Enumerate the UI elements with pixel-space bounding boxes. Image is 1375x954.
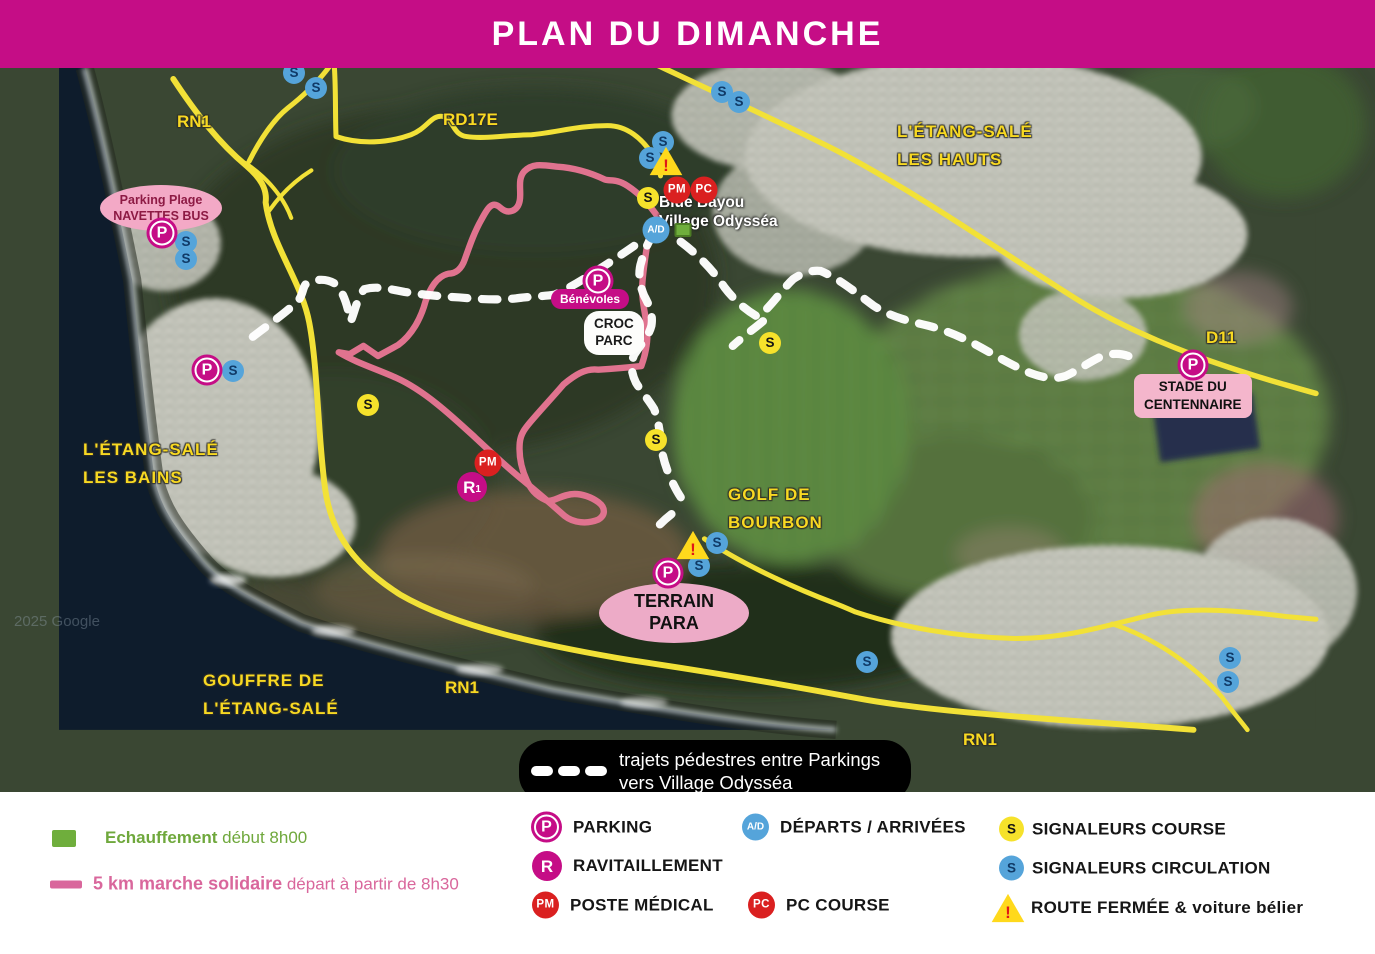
legend-signaleurs-course: S SIGNALEURS COURSE xyxy=(999,817,1226,842)
poi-croc-parc: CROC PARC xyxy=(584,311,644,355)
area-label-gouffre-etang-sale: GOUFFRE DE L'ÉTANG-SALÉ xyxy=(203,667,339,723)
signaleur-circulation-marker: S xyxy=(1219,647,1241,669)
legend-poste-medical: PM POSTE MÉDICAL xyxy=(532,892,714,919)
signaleur-circulation-marker: S xyxy=(1217,671,1239,693)
parking-marker: P xyxy=(192,355,223,386)
poste-medical-marker: PM xyxy=(664,177,691,204)
signaleur-circulation-marker: S xyxy=(999,856,1024,881)
road-label-rd17e: RD17E xyxy=(443,110,498,130)
legend-route-fermee: ! ROUTE FERMÉE & voiture bélier xyxy=(991,893,1303,923)
legend-signaleurs-circulation: S SIGNALEURS CIRCULATION xyxy=(999,856,1271,881)
satellite-map: 2025 Google Parking Plage NAVETTES BUS B… xyxy=(0,68,1375,792)
parking-marker: P xyxy=(1178,350,1209,381)
signaleur-course-marker: S xyxy=(999,817,1024,842)
legend-echauffement: Echauffement début 8h00 xyxy=(52,828,307,848)
signaleur-circulation-marker: S xyxy=(706,532,728,554)
parking-marker: P xyxy=(531,812,562,843)
signaleur-circulation-marker: S xyxy=(222,360,244,382)
parking-marker: P xyxy=(147,218,178,249)
poi-terrain-para: TERRAIN PARA xyxy=(599,583,749,643)
pedestrian-routes-note: trajets pédestres entre Parkings vers Vi… xyxy=(519,740,911,792)
echauffement-square xyxy=(675,223,692,237)
area-label-golf-de-bourbon: GOLF DE BOURBON xyxy=(728,481,823,537)
signaleur-course-marker: S xyxy=(645,429,667,451)
signaleur-course-marker: S xyxy=(759,332,781,354)
road-label-rn1: RN1 xyxy=(177,112,211,132)
map-watermark: 2025 Google xyxy=(14,613,100,630)
echauffement-swatch xyxy=(52,830,76,847)
plan-du-dimanche-event-map: PLAN DU DIMANCHE xyxy=(0,0,1375,954)
legend-departs-arrivees: A/D DÉPARTS / ARRIVÉES xyxy=(742,814,966,841)
poi-stade-du-centennaire: STADE DU CENTENNAIRE xyxy=(1134,374,1252,418)
signaleur-circulation-marker: S xyxy=(856,651,878,673)
legend-pc-course: PC PC COURSE xyxy=(748,892,890,919)
signaleur-circulation-marker: S xyxy=(175,248,197,270)
legend-marche-solidaire: 5 km marche solidaire départ à partir de… xyxy=(50,874,459,895)
road-label-rn1: RN1 xyxy=(963,730,997,750)
poste-medical-marker: PM xyxy=(475,450,502,477)
signaleur-course-marker: S xyxy=(357,394,379,416)
parking-marker: P xyxy=(583,266,614,297)
legend-ravitaillement: R RAVITAILLEMENT xyxy=(532,851,723,881)
departs-arrivees-marker: A/D xyxy=(643,217,670,244)
signaleur-course-marker: S xyxy=(637,187,659,209)
legend-parking: P PARKING xyxy=(531,812,652,843)
legend: Echauffement début 8h00 5 km marche soli… xyxy=(0,792,1375,954)
signaleur-circulation-marker: S xyxy=(305,77,327,99)
marche-route-swatch xyxy=(50,880,82,888)
route-fermee-warning-icon: ! xyxy=(991,893,1025,923)
ravitaillement-marker: R1 xyxy=(457,472,487,502)
parking-marker: P xyxy=(653,558,684,589)
ravitaillement-marker: R xyxy=(532,851,562,881)
area-label-etang-sale-les-hauts: L'ÉTANG-SALÉ LES HAUTS xyxy=(897,118,1033,174)
road-label-d11: D11 xyxy=(1206,328,1236,348)
road-label-rn1: RN1 xyxy=(445,678,479,698)
poste-medical-marker: PM xyxy=(532,892,559,919)
header-banner: PLAN DU DIMANCHE xyxy=(0,0,1375,68)
departs-arrivees-marker: A/D xyxy=(742,814,769,841)
pc-course-marker: PC xyxy=(748,892,775,919)
white-dash-icon xyxy=(531,766,607,776)
page-title: PLAN DU DIMANCHE xyxy=(492,15,884,54)
signaleur-circulation-marker: S xyxy=(728,91,750,113)
area-label-etang-sale-les-bains: L'ÉTANG-SALÉ LES BAINS xyxy=(83,436,219,492)
pc-course-marker: PC xyxy=(691,177,718,204)
